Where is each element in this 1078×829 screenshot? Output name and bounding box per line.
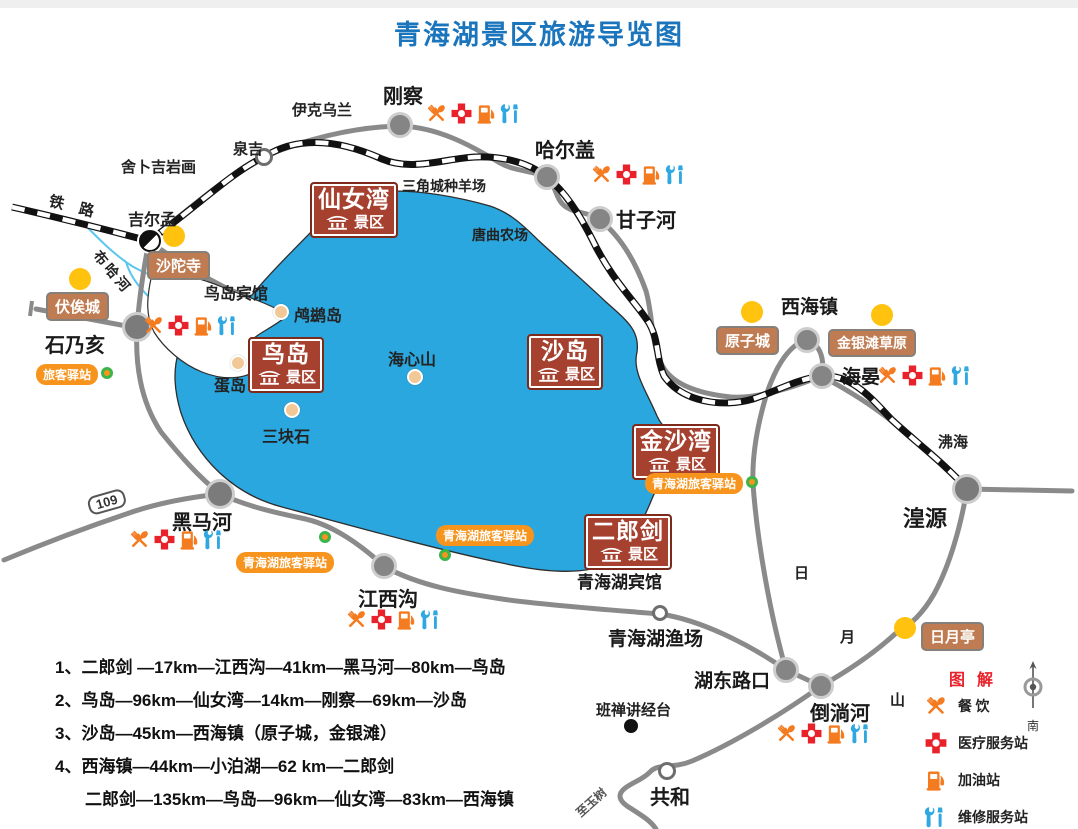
town-label-shinaihai: 石乃亥 — [45, 329, 105, 358]
gas-icon — [395, 608, 418, 631]
gas-icon — [926, 364, 949, 387]
town-label-haiyan: 海晏 — [842, 362, 880, 389]
badge-fusicheng[interactable]: 伏俟城 — [46, 292, 109, 321]
repair-icon — [217, 314, 240, 337]
services-daotanghe — [775, 722, 873, 745]
legend-item-dining: 餐 饮 — [924, 694, 1028, 718]
label-yikewulan: 伊克乌兰 — [292, 99, 352, 120]
legend-label: 加油站 — [958, 770, 1000, 790]
dining-icon — [924, 694, 948, 718]
stop-marker-west — [101, 367, 113, 379]
town-label-jierman: 吉尔孟 — [128, 206, 176, 230]
gas-icon — [640, 163, 663, 186]
dining-icon — [775, 722, 798, 745]
temple-icon — [598, 545, 625, 562]
legend-title: 图 解 — [949, 666, 997, 690]
poi-marker-riyueting — [894, 617, 916, 639]
scenic-suffix: 景区 — [628, 543, 658, 564]
scenic-suffix: 景区 — [676, 453, 706, 474]
legend-label: 维修服务站 — [958, 807, 1028, 827]
label-shebujiyanhua: 舍卜吉岩画 — [121, 156, 196, 177]
services-jiangxigou — [345, 608, 443, 631]
gas-icon — [924, 768, 948, 792]
temple-icon — [324, 213, 351, 230]
marker-yuchang[interactable] — [652, 605, 668, 621]
gas-icon — [192, 314, 215, 337]
label-yue: 月 — [840, 626, 855, 647]
gas-icon — [475, 102, 498, 125]
stop-marker-south — [439, 549, 451, 561]
label-haixinshan: 海心山 — [388, 346, 436, 370]
temple-icon — [256, 368, 283, 385]
medical-icon — [800, 722, 823, 745]
town-marker-xihaizhen[interactable] — [794, 327, 820, 353]
poi-marker-jinyintan — [871, 304, 893, 326]
legend-item-repair: 维修服务站 — [924, 805, 1028, 829]
badge-shatuosi[interactable]: 沙陀寺 — [147, 251, 210, 280]
dining-icon — [345, 608, 368, 631]
badge-yuanzicheng[interactable]: 原子城 — [716, 326, 779, 355]
services-shinaihai — [142, 314, 240, 337]
scenic-name: 金沙湾 — [640, 429, 712, 453]
map-stage: 青海湖景区旅游导览图 — [0, 0, 1078, 829]
temple-icon — [535, 365, 562, 382]
label-sanjiaocheng: 三角城种羊场 — [402, 176, 486, 196]
scenic-name: 仙女湾 — [318, 187, 390, 211]
town-marker-heimahe[interactable] — [205, 479, 235, 509]
label-banchan: 班禅讲经台 — [596, 699, 671, 720]
island-marker-luciidao — [273, 304, 289, 320]
town-marker-haiyan[interactable] — [809, 363, 835, 389]
repair-icon — [951, 364, 974, 387]
badge-jinyintan[interactable]: 金银滩草原 — [828, 329, 916, 357]
dining-icon — [876, 364, 899, 387]
route-line: 3、沙岛—45km—西海镇（原子城，金银滩） — [55, 717, 514, 750]
island-marker-sankuaishi — [284, 402, 300, 418]
town-label-hudonglukou: 湖东路口 — [694, 666, 770, 693]
town-label-gonghe: 共和 — [650, 781, 690, 810]
label-qinghaihu-hotel: 青海湖宾馆 — [577, 568, 662, 593]
poi-marker-fusicheng — [69, 268, 91, 290]
route-line: 2、鸟岛—96km—仙女湾—14km—刚察—69km—沙岛 — [55, 684, 514, 717]
label-shan: 山 — [890, 689, 905, 710]
repair-icon — [500, 102, 523, 125]
town-marker-daotanghe[interactable] — [808, 673, 834, 699]
medical-icon — [901, 364, 924, 387]
repair-icon — [203, 528, 226, 551]
label-luciidao: 鸬鹚岛 — [294, 302, 342, 326]
station-badge-west[interactable]: 旅客驿站 — [36, 364, 98, 385]
town-marker-huangyuan[interactable] — [952, 474, 982, 504]
repair-icon — [850, 722, 873, 745]
services-heimahe — [128, 528, 226, 551]
services-haiyan — [876, 364, 974, 387]
route-list: 1、二郎剑 —17km—江西沟—41km—黑马河—80km—鸟岛 2、鸟岛—96… — [55, 651, 514, 816]
label-dandao: 蛋岛 — [214, 372, 246, 396]
town-marker-jiangxigou[interactable] — [371, 553, 397, 579]
legend-label: 餐 饮 — [958, 696, 990, 716]
badge-riyueting[interactable]: 日月亭 — [921, 622, 984, 651]
island-marker-dandao — [230, 355, 246, 371]
medical-icon — [370, 608, 393, 631]
stop-marker-southwest — [319, 531, 331, 543]
town-marker-ganzihe[interactable] — [587, 206, 613, 232]
dining-icon — [128, 528, 151, 551]
services-haergai — [590, 163, 688, 186]
scenic-badge-jinshawan[interactable]: 金沙湾 景区 — [632, 424, 720, 480]
medical-icon — [450, 102, 473, 125]
town-label-quanji: 泉吉 — [233, 138, 263, 159]
scenic-badge-xiannvwan[interactable]: 仙女湾 景区 — [310, 182, 398, 238]
medical-icon — [615, 163, 638, 186]
route-line: 1、二郎剑 —17km—江西沟—41km—黑马河—80km—鸟岛 — [55, 651, 514, 684]
town-label-huangyuan: 湟源 — [903, 501, 947, 533]
rail-station-marker-jierman[interactable] — [139, 230, 161, 252]
scenic-badge-erlangjian[interactable]: 二郎剑 景区 — [584, 514, 672, 570]
town-label-ganzihe: 甘子河 — [616, 204, 676, 233]
scenic-badge-niaodao[interactable]: 鸟岛 景区 — [248, 337, 324, 393]
repair-icon — [665, 163, 688, 186]
town-label-gangcha: 刚察 — [383, 80, 423, 109]
label-tangqu: 唐曲农场 — [472, 225, 528, 245]
scenic-name: 沙岛 — [535, 339, 595, 363]
scenic-suffix: 景区 — [565, 363, 595, 384]
dining-icon — [142, 314, 165, 337]
label-niaodao-hotel: 鸟岛宾馆 — [204, 280, 268, 304]
town-marker-gangcha[interactable] — [387, 112, 413, 138]
junction-marker-hudonglukou-1[interactable] — [773, 657, 799, 683]
station-badge-south[interactable]: 青海湖旅客驿站 — [436, 525, 534, 546]
scenic-suffix: 景区 — [286, 366, 316, 387]
services-gangcha — [425, 102, 523, 125]
scenic-name: 二郎剑 — [592, 519, 664, 543]
legend: 餐 饮 医疗服务站 加油站 维修服务站 — [924, 694, 1028, 829]
repair-icon — [420, 608, 443, 631]
town-marker-gonghe[interactable] — [658, 762, 676, 780]
town-label-xihaizhen: 西海镇 — [781, 292, 838, 319]
label-feihai: 沸海 — [938, 431, 968, 452]
stop-marker-east — [746, 476, 758, 488]
island-marker-haixinshan — [407, 369, 423, 385]
scenic-name: 鸟岛 — [256, 342, 316, 366]
medical-icon — [153, 528, 176, 551]
medical-icon — [167, 314, 190, 337]
legend-label: 医疗服务站 — [958, 733, 1028, 753]
dining-icon — [425, 102, 448, 125]
poi-marker-yuanzicheng — [741, 301, 763, 323]
route-line: 4、西海镇—44km—小泊湖—62 km—二郎剑 — [55, 750, 514, 783]
label-yuchang: 青海湖渔场 — [608, 624, 703, 651]
legend-item-gas: 加油站 — [924, 768, 1028, 792]
scenic-badge-shadao[interactable]: 沙岛 景区 — [527, 334, 603, 390]
station-badge-southwest[interactable]: 青海湖旅客驿站 — [236, 552, 334, 573]
temple-icon — [646, 455, 673, 472]
town-marker-haergai[interactable] — [534, 164, 560, 190]
medical-icon — [924, 731, 948, 755]
dining-icon — [590, 163, 613, 186]
route-line: 二郎剑—135km—鸟岛—96km—仙女湾—83km—西海镇 — [85, 783, 514, 816]
label-ri: 日 — [794, 562, 809, 583]
gas-icon — [825, 722, 848, 745]
road-end-tick — [30, 301, 32, 316]
gas-icon — [178, 528, 201, 551]
repair-icon — [924, 805, 948, 829]
marker-banchan — [624, 719, 638, 733]
town-label-haergai: 哈尔盖 — [535, 134, 595, 163]
scenic-suffix: 景区 — [354, 211, 384, 232]
station-badge-east[interactable]: 青海湖旅客驿站 — [645, 473, 743, 494]
label-sankuaishi: 三块石 — [262, 423, 310, 447]
legend-item-medical: 医疗服务站 — [924, 731, 1028, 755]
